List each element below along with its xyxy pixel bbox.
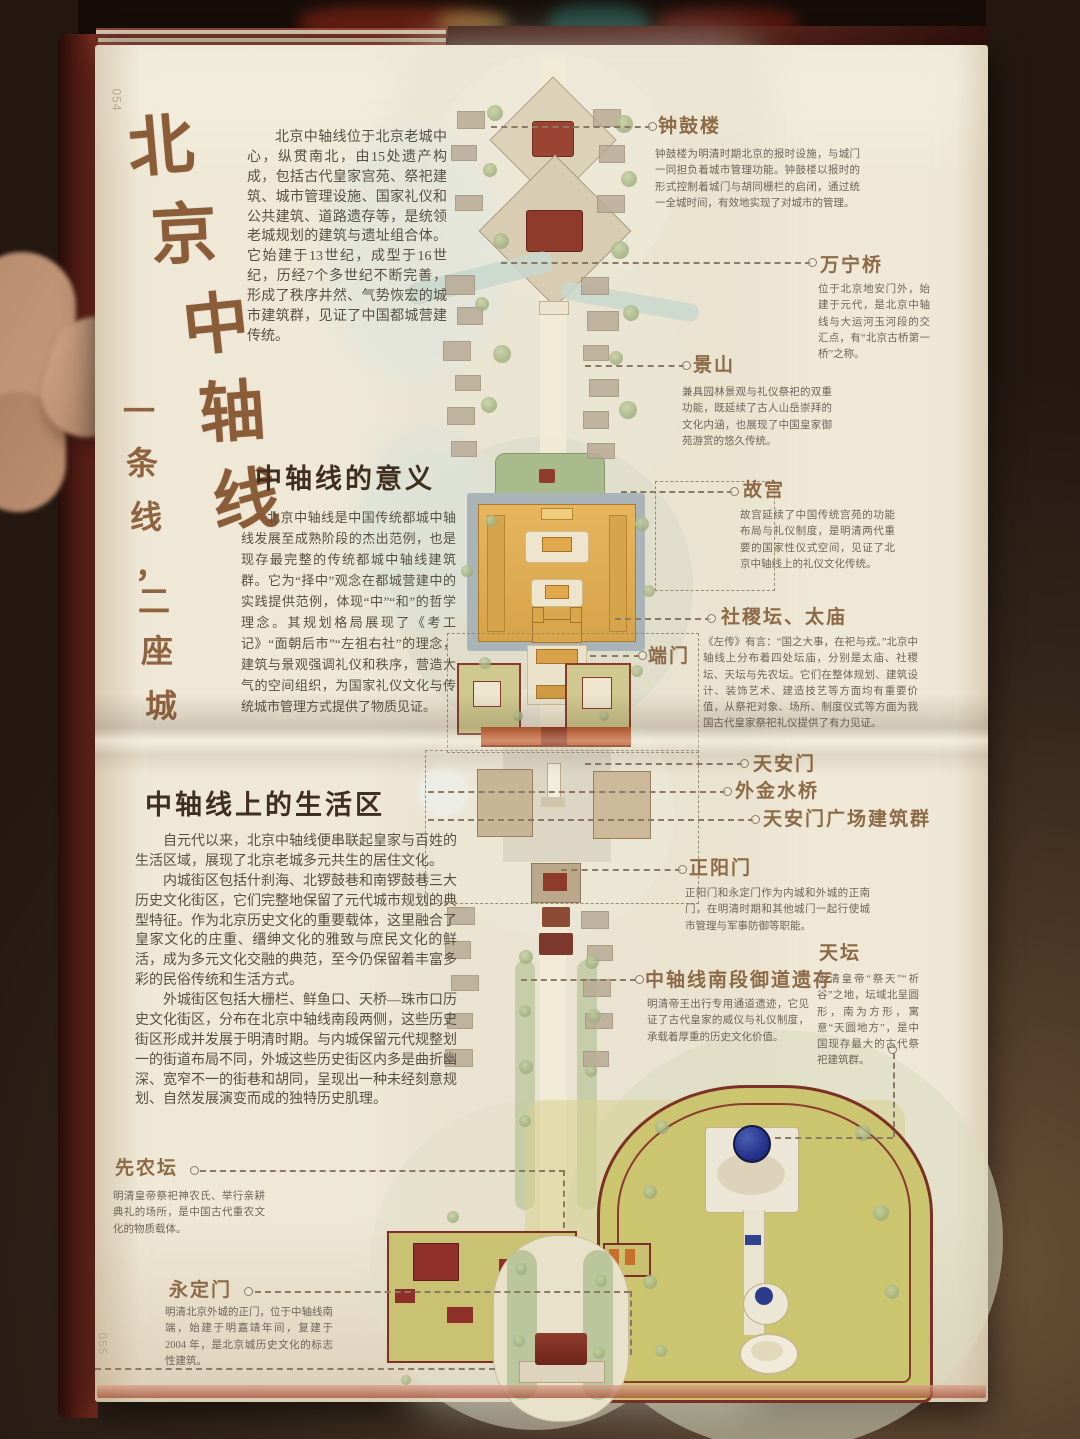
map-building-block [583, 979, 611, 997]
annotation-desc-jingshan: 兼具园林景观与礼仪祭祀的双重功能，既延续了古人山岳崇拜的文化内涵，也展现了中国皇… [682, 385, 832, 450]
book-photo: 054 055 北 京 中 轴 线 一 条 线 ， 二 座 城 北京中轴线位于北… [0, 0, 1080, 1439]
annotation-desc-zhonggulou: 钟鼓楼为明清时期北京的报时设施，与城门一同担负着城市管理功能。钟鼓楼以报时的形式… [655, 147, 860, 212]
leader-dot-waijinshuiqiao [723, 787, 732, 796]
annotation-label-zhonggulou: 钟鼓楼 [658, 111, 721, 138]
map-building-block [589, 379, 619, 397]
leader-dot-tiananmen [740, 759, 749, 768]
map-tree [461, 565, 473, 577]
annotation-label-yongdingmen: 永定门 [169, 1275, 232, 1302]
map-tree [487, 105, 503, 121]
annotation-label-tiananmen: 天安门 [753, 749, 816, 776]
map-building-block [445, 275, 475, 295]
map-tree [611, 241, 629, 259]
leader-line-xiannongtan-vertical [563, 1170, 565, 1228]
map-tree [585, 1065, 597, 1077]
map-tree [595, 1275, 607, 1287]
map-tree [519, 1115, 531, 1127]
map-tree [655, 1345, 667, 1357]
map-tree [475, 297, 489, 311]
map-building-block [581, 911, 609, 929]
map-tree [619, 401, 637, 419]
leader-line-tiananmen [585, 763, 743, 765]
annotation-label-jingshan: 景山 [693, 350, 735, 377]
leader-line-xiannongtan [200, 1170, 565, 1172]
map-tree [585, 955, 599, 969]
annotation-label-sheji-taimiao: 社稷坛、太庙 [721, 602, 847, 629]
map-jingshan-pavilion [539, 469, 555, 483]
annotation-label-yudao: 中轴线南段御道遗存 [645, 965, 834, 992]
leader-line-yongdingmen-vertical [630, 1291, 632, 1355]
intro-text: 北京中轴线位于北京老城中心，纵贯南北，由15处遗产构成，包括古代皇家宫苑、祭祀建… [247, 128, 447, 347]
region-box-square [425, 750, 699, 904]
leader-line-yudao [521, 979, 636, 981]
map-tree [643, 1275, 657, 1289]
map-tree [515, 1263, 527, 1275]
subtitle-char: 城 [145, 690, 177, 722]
annotation-label-zhengyangmen: 正阳门 [689, 853, 752, 880]
map-building-block [587, 311, 619, 331]
book-cover-left-edge [58, 34, 98, 1418]
map-tree [643, 585, 655, 597]
map-tree [493, 345, 511, 363]
leader-dot-guangchangqun [751, 815, 760, 824]
map-building-block [443, 341, 471, 361]
map-tree [609, 351, 623, 365]
map-tree [635, 517, 649, 531]
page-number-top: 054 [110, 88, 124, 111]
intro-paragraph: 北京中轴线位于北京老城中心，纵贯南北，由15处遗产构成，包括古代皇家宫苑、祭祀建… [247, 128, 447, 347]
map-building-block [581, 277, 609, 295]
map-building-block [597, 195, 625, 213]
leader-line-sheji-taimiao [615, 618, 711, 620]
map-building-block [587, 443, 615, 459]
leader-line-zhonggulou [491, 126, 651, 128]
leader-dot-zhengyangmen [678, 865, 687, 874]
annotation-label-duanmen: 端门 [648, 641, 690, 668]
section-heading-living: 中轴线上的生活区 [145, 783, 385, 822]
subtitle-char: 线 [130, 501, 162, 533]
leader-line-jingshan [585, 365, 685, 367]
leader-dot-jingshan [682, 361, 691, 370]
map-tree [643, 1185, 657, 1199]
annotation-label-tiantan: 天坛 [819, 938, 861, 965]
leader-line-waijinshuiqiao [428, 791, 726, 793]
annotation-label-wanningqiao: 万宁桥 [820, 250, 883, 277]
map-tree [593, 1347, 605, 1359]
map-tree [519, 950, 533, 964]
title-char: 北 [125, 112, 197, 184]
annotation-desc-wanningqiao: 位于北京地安门外，始建于元代，是北京中轴线与大运河玉河段的交汇点，有“北京古桥第… [818, 282, 930, 363]
book-page-spread: 054 055 北 京 中 轴 线 一 条 线 ， 二 座 城 北京中轴线位于北… [95, 45, 988, 1402]
subtitle-char: 条 [126, 447, 158, 479]
leader-dot-duanmen [638, 651, 647, 660]
map-tree [623, 305, 639, 321]
meaning-paragraph: 北京中轴线是中国传统都城中轴线发展至成熟阶段的杰出范例，也是现存最完整的传统都城… [241, 507, 456, 717]
leader-dot-yongdingmen [244, 1287, 253, 1296]
map-tree [401, 1375, 411, 1385]
map-building-block [451, 441, 477, 457]
map-tree [485, 515, 497, 527]
annotation-desc-sheji-taimiao: 《左传》有言：“国之大事，在祀与戎。”北京中轴线上分布着四处坛庙，分别是太庙、社… [703, 635, 918, 733]
map-tree [513, 1335, 525, 1347]
subtitle-char: ， [135, 550, 167, 582]
map-building-block [583, 345, 609, 361]
map-building-block [447, 407, 475, 425]
map-building-block [583, 411, 609, 429]
title-char: 轴 [197, 379, 267, 449]
section-heading-meaning: 中轴线的意义 [255, 457, 435, 496]
page-number-bottom: 055 [96, 1332, 110, 1355]
title-char: 中 [180, 290, 253, 363]
map-tree [481, 397, 497, 413]
annotation-desc-zhengyangmen: 正阳门和永定门作为内城和外城的正南门，在明清时期和其他城门一起行使城市管理与军事… [685, 886, 870, 935]
map-tree [519, 1005, 531, 1017]
annotation-desc-gugong: 故宫延续了中国传统宫苑的功能布局与礼仪制度，是明清两代重要的国家性仪式空间，见证… [740, 508, 895, 573]
leader-line-wanningqiao [501, 262, 811, 264]
leader-line-guangchangqun [428, 819, 754, 821]
page-bottom-red-edge [97, 1385, 986, 1398]
map-tree [621, 171, 637, 187]
leader-dot-wanningqiao [808, 258, 817, 267]
living-text-2: 内城街区包括什刹海、北锣鼓巷和南锣鼓巷三大历史文化街区，它们完整地保留了元代城市… [135, 872, 457, 991]
map-building-block [451, 145, 477, 161]
map-tree [587, 1009, 601, 1023]
map-tree [615, 115, 633, 133]
annotation-desc-xiannongtan: 明清皇帝祭祀神农氏、举行亲耕典礼的场所，是中国古代重农文化的物质载体。 [113, 1189, 265, 1238]
map-building-block [455, 195, 483, 211]
map-tree [655, 1120, 669, 1134]
living-paragraphs: 自元代以来，北京中轴线便串联起皇家与百姓的生活区域，展现了北京老城多元共生的居住… [135, 832, 457, 1110]
title-char: 京 [149, 201, 218, 270]
leader-line-gugong [621, 491, 733, 493]
meaning-text: 北京中轴线是中国传统都城中轴线发展至成熟阶段的杰出范例，也是现存最完整的传统都城… [241, 507, 456, 717]
leader-dot-yudao [635, 975, 644, 984]
living-text-1: 自元代以来，北京中轴线便串联起皇家与百姓的生活区域，展现了北京老城多元共生的居住… [135, 832, 457, 872]
subtitle-char: 二 [138, 585, 170, 617]
annotation-desc-yongdingmen: 明清北京外城的正门，位于中轴线南端，始建于明嘉靖年间，复建于 2004 年，是北… [165, 1305, 333, 1370]
map-tree [873, 1205, 889, 1221]
leader-dot-gugong [730, 487, 739, 496]
annotation-label-waijinshuiqiao: 外金水桥 [735, 776, 819, 803]
annotation-label-xiannongtan: 先农坛 [115, 1153, 178, 1180]
subtitle-char: 座 [141, 635, 173, 667]
annotation-label-guangchangqun: 天安门广场建筑群 [763, 804, 931, 831]
annotation-label-gugong: 故宫 [743, 475, 785, 502]
leader-dot-xiannongtan [190, 1166, 199, 1175]
map-tree [885, 1285, 899, 1299]
leader-line-zhengyangmen [561, 869, 681, 871]
map-building-block [455, 375, 481, 391]
leader-line-yongdingmen [255, 1291, 630, 1293]
map-tree [519, 1060, 533, 1074]
map-building-block [599, 145, 625, 163]
map-building-block [583, 1051, 609, 1067]
subtitle-char: 一 [123, 395, 155, 427]
annotation-desc-yudao: 明清帝王出行专用通道遗迹，它见证了古代皇家的威仪与礼仪制度，承载着厚重的历史文化… [647, 997, 809, 1046]
leader-dot-zhonggulou [648, 122, 657, 131]
map-building-block [457, 111, 485, 129]
leader-line-duanmen [590, 655, 640, 657]
leader-dot-sheji-taimiao [707, 614, 716, 623]
map-tree [493, 233, 509, 249]
living-text-3: 外城街区包括大栅栏、鲜鱼口、天桥—珠市口历史文化街区，分布在北京中轴线南段两侧，… [135, 991, 457, 1110]
map-tree [483, 163, 497, 177]
map-tree [447, 1211, 459, 1223]
leader-line-tiantan-horizontal [775, 1137, 893, 1139]
